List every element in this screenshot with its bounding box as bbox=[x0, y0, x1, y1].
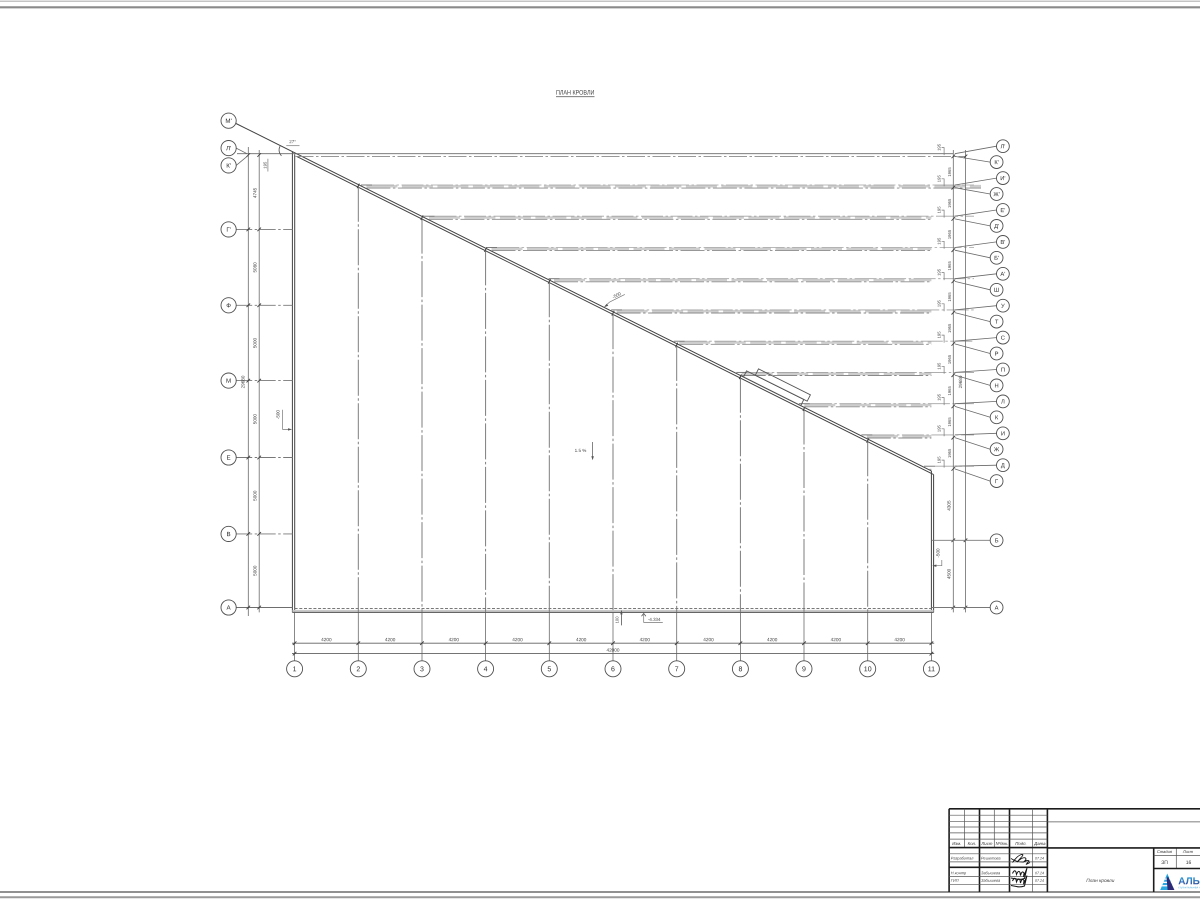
svg-text:Е: Е bbox=[227, 455, 231, 462]
svg-text:Подп.: Подп. bbox=[1015, 841, 1026, 846]
svg-text:Дата: Дата bbox=[1033, 841, 1046, 846]
svg-text:42000: 42000 bbox=[606, 648, 619, 653]
svg-text:6: 6 bbox=[611, 666, 615, 673]
svg-text:4305: 4305 bbox=[947, 500, 952, 511]
svg-text:07.24: 07.24 bbox=[1035, 879, 1044, 883]
svg-text:195: 195 bbox=[936, 424, 941, 432]
svg-text:27°: 27° bbox=[289, 139, 296, 144]
svg-text:1.5 %: 1.5 % bbox=[575, 448, 587, 453]
svg-text:К': К' bbox=[994, 160, 998, 166]
svg-text:Н: Н bbox=[995, 383, 999, 389]
svg-text:1965: 1965 bbox=[947, 229, 952, 239]
svg-text:Nºдок.: Nºдок. bbox=[996, 841, 1009, 846]
svg-text:4745: 4745 bbox=[252, 187, 257, 198]
svg-text:И': И' bbox=[1000, 176, 1005, 182]
svg-text:5000: 5000 bbox=[252, 414, 257, 425]
svg-text:4200: 4200 bbox=[640, 637, 651, 642]
svg-text:Б': Б' bbox=[994, 256, 999, 262]
svg-text:М': М' bbox=[225, 118, 231, 125]
svg-text:195: 195 bbox=[936, 268, 941, 276]
svg-text:План кровли: План кровли bbox=[1086, 878, 1114, 884]
svg-text:А: А bbox=[995, 606, 999, 612]
svg-text:4200: 4200 bbox=[894, 637, 905, 642]
svg-text:3: 3 bbox=[420, 666, 424, 673]
svg-text:Д: Д bbox=[1001, 463, 1005, 469]
svg-text:4200: 4200 bbox=[512, 637, 523, 642]
svg-text:5000: 5000 bbox=[252, 337, 257, 348]
svg-text:195: 195 bbox=[936, 299, 941, 307]
svg-text:07.24: 07.24 bbox=[1035, 871, 1044, 875]
svg-text:И: И bbox=[1001, 431, 1005, 437]
svg-text:Р: Р bbox=[995, 352, 999, 358]
svg-text:В: В bbox=[227, 531, 231, 538]
svg-text:7: 7 bbox=[675, 666, 679, 673]
svg-text:5000: 5000 bbox=[252, 490, 257, 501]
svg-text:Стадия: Стадия bbox=[1157, 849, 1173, 854]
svg-text:1965: 1965 bbox=[947, 260, 952, 270]
svg-text:195: 195 bbox=[936, 331, 941, 339]
svg-text:Б: Б bbox=[995, 538, 999, 544]
svg-text:1965: 1965 bbox=[947, 292, 952, 302]
svg-text:4200: 4200 bbox=[449, 637, 460, 642]
svg-text:195: 195 bbox=[936, 362, 941, 370]
svg-text:Г': Г' bbox=[226, 227, 231, 234]
svg-text:А': А' bbox=[1000, 272, 1005, 278]
svg-text:4200: 4200 bbox=[576, 637, 587, 642]
svg-text:ГИП: ГИП bbox=[951, 878, 959, 883]
svg-text:Изм.: Изм. bbox=[952, 841, 961, 846]
svg-text:-500: -500 bbox=[935, 548, 940, 558]
svg-text:1965: 1965 bbox=[947, 354, 952, 364]
svg-text:5080: 5080 bbox=[252, 262, 257, 273]
svg-text:1965: 1965 bbox=[947, 167, 952, 177]
svg-text:2: 2 bbox=[356, 666, 360, 673]
svg-text:5: 5 bbox=[547, 666, 551, 673]
svg-text:195: 195 bbox=[936, 237, 941, 245]
svg-text:8: 8 bbox=[738, 666, 742, 673]
svg-text:Ф: Ф bbox=[226, 302, 231, 309]
svg-text:ПЛАН КРОВЛИ: ПЛАН КРОВЛИ bbox=[556, 90, 595, 97]
svg-text:4200: 4200 bbox=[385, 637, 396, 642]
svg-text:195: 195 bbox=[936, 143, 941, 151]
svg-text:1965: 1965 bbox=[947, 385, 952, 395]
svg-text:К': К' bbox=[226, 163, 231, 170]
svg-text:4200: 4200 bbox=[767, 637, 778, 642]
svg-text:Т: Т bbox=[995, 320, 999, 326]
svg-text:Л': Л' bbox=[1000, 144, 1005, 150]
svg-text:4200: 4200 bbox=[831, 637, 842, 642]
svg-text:9: 9 bbox=[802, 666, 806, 673]
svg-text:5000: 5000 bbox=[252, 565, 257, 576]
svg-text:-500: -500 bbox=[275, 410, 280, 420]
svg-text:Кол.: Кол. bbox=[968, 841, 976, 846]
svg-text:Л: Л bbox=[1001, 399, 1005, 405]
svg-text:4: 4 bbox=[484, 666, 488, 673]
svg-text:4200: 4200 bbox=[321, 637, 332, 642]
svg-text:195: 195 bbox=[936, 456, 941, 464]
svg-text:П: П bbox=[1001, 368, 1005, 374]
svg-text:10: 10 bbox=[864, 666, 872, 673]
svg-text:Лист: Лист bbox=[1182, 849, 1194, 854]
svg-text:4500: 4500 bbox=[947, 568, 952, 579]
svg-text:Лист: Лист bbox=[980, 841, 992, 846]
svg-text:Забышева: Забышева bbox=[981, 870, 1001, 875]
svg-text:1965: 1965 bbox=[947, 417, 952, 427]
svg-text:195: 195 bbox=[936, 206, 941, 214]
svg-text:Д': Д' bbox=[994, 224, 999, 230]
svg-text:ЗП: ЗП bbox=[1161, 860, 1168, 866]
svg-text:100: 100 bbox=[614, 616, 619, 624]
svg-text:Решетова: Решетова bbox=[981, 856, 1001, 861]
svg-text:07.24: 07.24 bbox=[1035, 856, 1044, 860]
svg-text:У: У bbox=[1001, 304, 1005, 310]
svg-text:Ж': Ж' bbox=[993, 192, 999, 198]
svg-text:1965: 1965 bbox=[947, 323, 952, 333]
svg-text:195: 195 bbox=[936, 175, 941, 183]
svg-text:1965: 1965 bbox=[947, 198, 952, 208]
svg-text:строительная компания: строительная компания bbox=[1178, 886, 1200, 889]
svg-text:Разработал: Разработал bbox=[951, 856, 974, 861]
svg-text:16: 16 bbox=[1186, 860, 1192, 866]
svg-text:Ш: Ш bbox=[994, 288, 999, 294]
svg-text:195: 195 bbox=[262, 161, 267, 169]
svg-text:Л': Л' bbox=[226, 145, 231, 152]
svg-text:В': В' bbox=[1000, 240, 1005, 246]
svg-text:Забышева: Забышева bbox=[981, 878, 1001, 883]
svg-text:1965: 1965 bbox=[947, 448, 952, 458]
svg-text:11: 11 bbox=[928, 666, 935, 673]
svg-text:-4.334: -4.334 bbox=[648, 617, 661, 622]
svg-text:М: М bbox=[226, 378, 231, 385]
svg-text:29680: 29680 bbox=[241, 375, 246, 388]
svg-text:1: 1 bbox=[293, 666, 297, 673]
svg-text:Е': Е' bbox=[1000, 208, 1005, 214]
svg-text:Н.контр: Н.контр bbox=[951, 870, 967, 875]
svg-text:С: С bbox=[1001, 335, 1005, 342]
svg-text:Ж: Ж bbox=[994, 447, 1000, 453]
svg-text:195: 195 bbox=[936, 393, 941, 401]
svg-text:4200: 4200 bbox=[703, 637, 714, 642]
